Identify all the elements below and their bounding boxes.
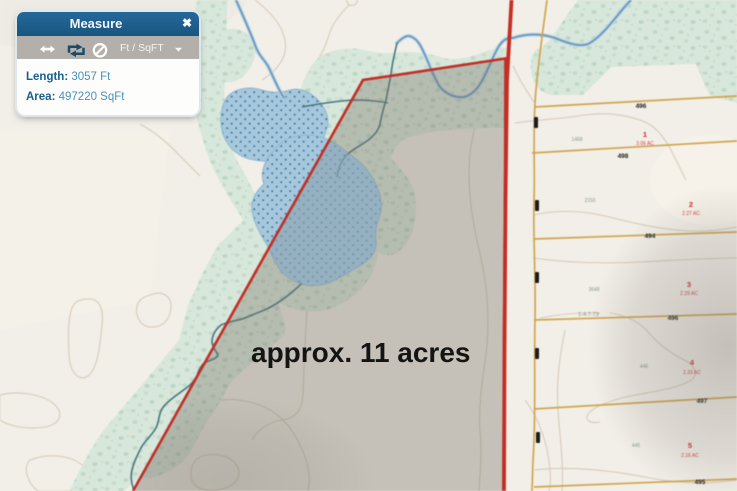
- svg-text:1: 1: [643, 130, 647, 139]
- svg-text:2150: 2150: [584, 198, 595, 204]
- svg-text:1468: 1468: [571, 137, 582, 143]
- svg-text:498: 498: [618, 153, 629, 160]
- svg-text:496: 496: [636, 103, 647, 110]
- svg-text:3.06 AC: 3.06 AC: [636, 141, 654, 147]
